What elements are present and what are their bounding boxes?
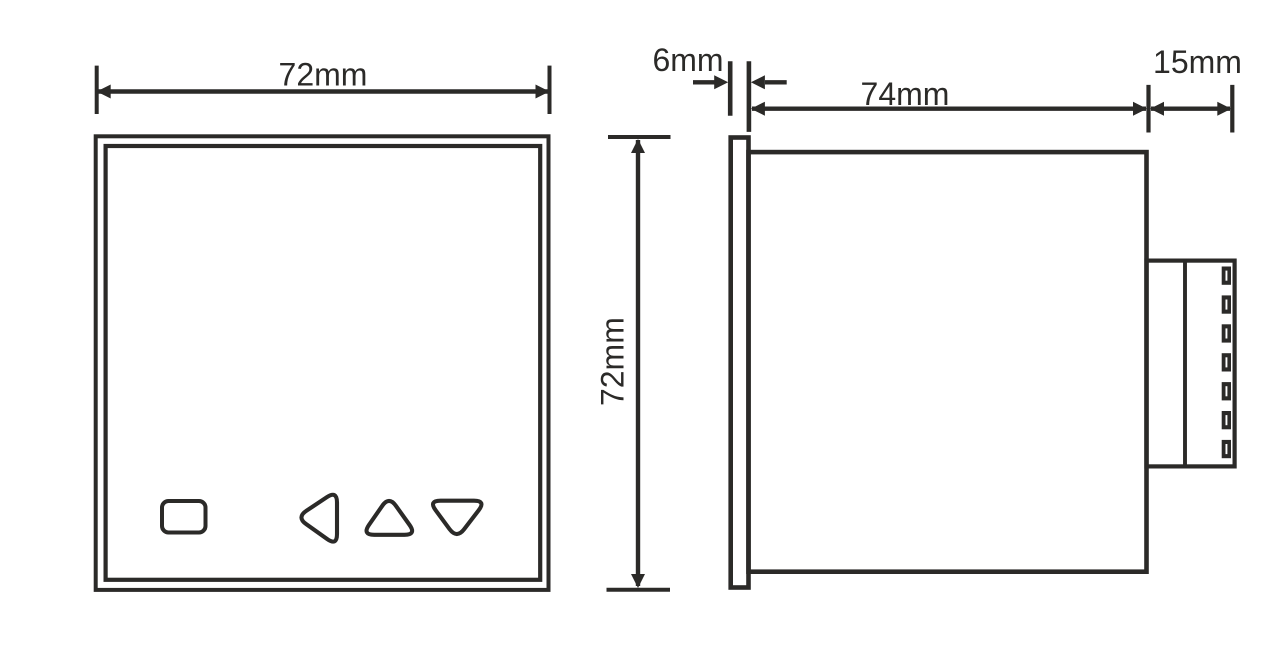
svg-text:15mm: 15mm [1153, 44, 1242, 80]
svg-text:74mm: 74mm [861, 76, 950, 112]
svg-text:72mm: 72mm [279, 56, 368, 92]
svg-text:6mm: 6mm [652, 42, 723, 78]
svg-text:72mm: 72mm [595, 317, 631, 406]
